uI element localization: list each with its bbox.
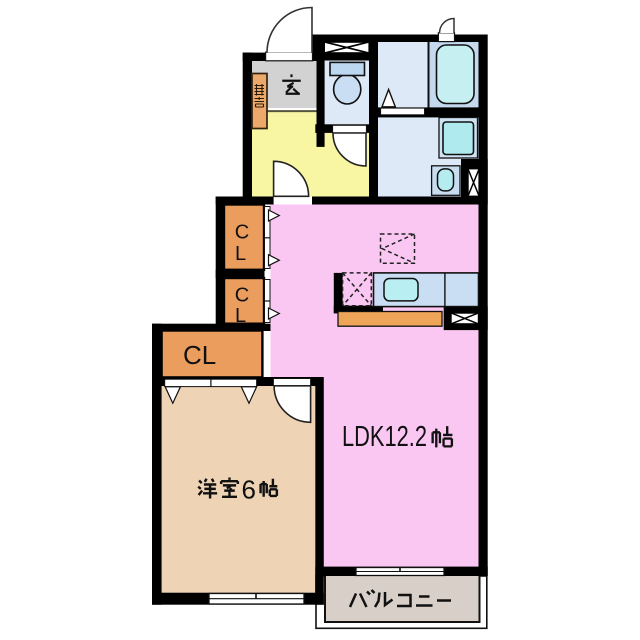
svg-text:L: L (235, 305, 246, 327)
svg-text:C: C (235, 285, 249, 307)
svg-text:CL: CL (183, 340, 216, 370)
svg-text:6: 6 (242, 475, 256, 505)
svg-text:LDK12.2: LDK12.2 (342, 421, 427, 453)
svg-text:L: L (235, 243, 246, 265)
svg-text:C: C (235, 222, 249, 244)
